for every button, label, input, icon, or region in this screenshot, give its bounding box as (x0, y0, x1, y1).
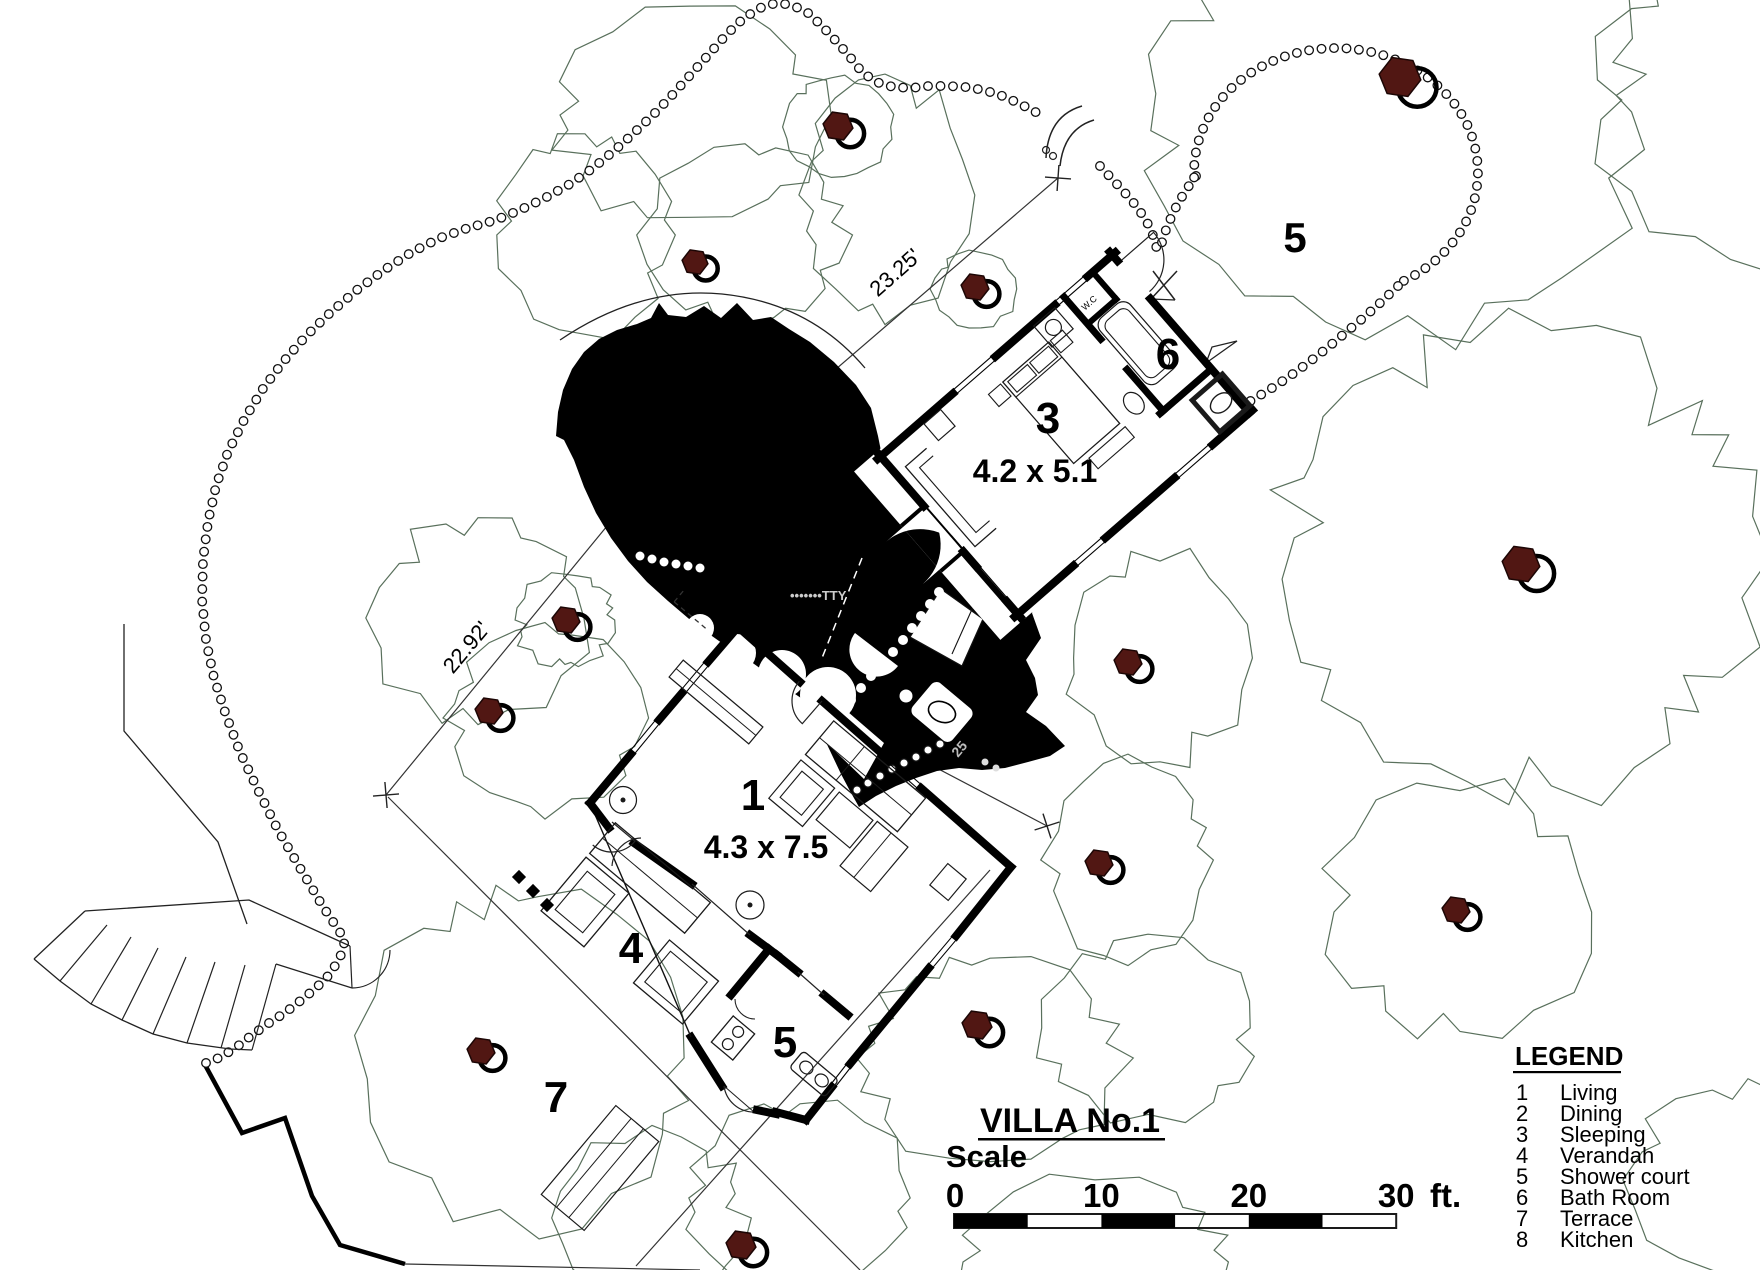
svg-text:VILLA No.1: VILLA No.1 (980, 1102, 1160, 1140)
svg-text:8: 8 (1516, 1227, 1528, 1252)
svg-text:1: 1 (741, 771, 765, 820)
svg-text:4.3 x 7.5: 4.3 x 7.5 (704, 829, 829, 865)
svg-text:4.2 x 5.1: 4.2 x 5.1 (973, 453, 1098, 489)
svg-text:4: 4 (619, 924, 644, 973)
svg-text:ft.: ft. (1430, 1177, 1461, 1214)
svg-text:6: 6 (1156, 330, 1180, 379)
svg-text:•••••••TTY: •••••••TTY (790, 588, 847, 603)
svg-text:10: 10 (1083, 1177, 1120, 1214)
svg-text:3: 3 (1036, 394, 1060, 443)
svg-text:5: 5 (773, 1018, 797, 1067)
svg-text:Scale: Scale (946, 1139, 1027, 1174)
svg-text:30: 30 (1378, 1177, 1415, 1214)
svg-text:20: 20 (1230, 1177, 1267, 1214)
svg-text:Kitchen: Kitchen (1560, 1227, 1633, 1252)
svg-text:LEGEND: LEGEND (1515, 1041, 1623, 1071)
svg-text:7: 7 (544, 1073, 568, 1122)
svg-text:5: 5 (1283, 214, 1306, 261)
svg-text:0: 0 (946, 1177, 964, 1214)
